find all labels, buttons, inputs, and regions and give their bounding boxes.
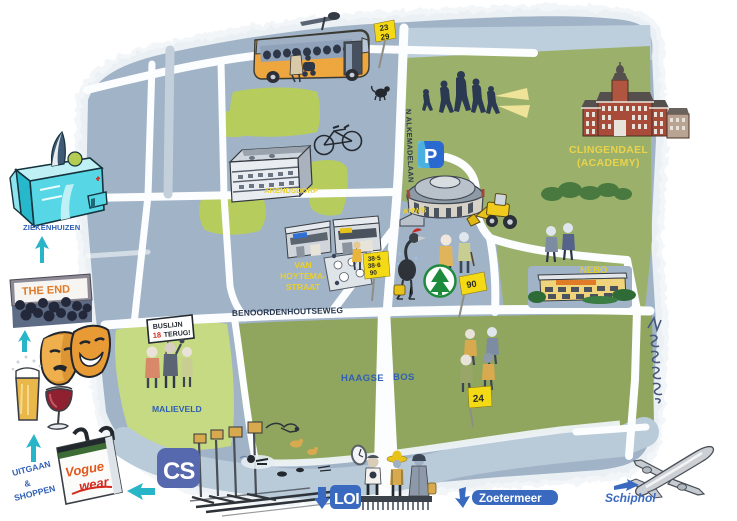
svg-text:18: 18 xyxy=(152,330,161,340)
svg-text:(ACADEMY): (ACADEMY) xyxy=(577,157,640,169)
svg-text:STRAAT: STRAAT xyxy=(286,282,321,292)
svg-text:24: 24 xyxy=(473,393,485,405)
svg-text:NEBO: NEBO xyxy=(580,265,607,276)
svg-text:ZIEKENHUIZEN: ZIEKENHUIZEN xyxy=(23,223,80,232)
svg-text:CLINGENDAEL: CLINGENDAEL xyxy=(569,144,648,156)
svg-text:BOS: BOS xyxy=(393,372,415,383)
svg-text:P: P xyxy=(424,146,437,168)
svg-text:90: 90 xyxy=(466,279,477,290)
svg-text:MALIEVELD: MALIEVELD xyxy=(152,404,202,414)
svg-text:90: 90 xyxy=(370,269,378,277)
svg-text:29: 29 xyxy=(380,32,391,42)
svg-text:VAN: VAN xyxy=(294,260,312,270)
svg-text:Zoetermeer: Zoetermeer xyxy=(479,493,542,505)
svg-text:Schiphol: Schiphol xyxy=(605,491,656,505)
svg-text:LOI: LOI xyxy=(334,491,359,508)
svg-text:CS: CS xyxy=(163,458,195,485)
svg-text:THE END: THE END xyxy=(22,283,71,298)
svg-text:ANWB: ANWB xyxy=(403,205,428,216)
svg-text:HOYTEMA-: HOYTEMA- xyxy=(280,271,326,281)
svg-text:ARENDSDORP: ARENDSDORP xyxy=(264,186,318,195)
svg-text:HAAGSE: HAAGSE xyxy=(341,373,384,384)
